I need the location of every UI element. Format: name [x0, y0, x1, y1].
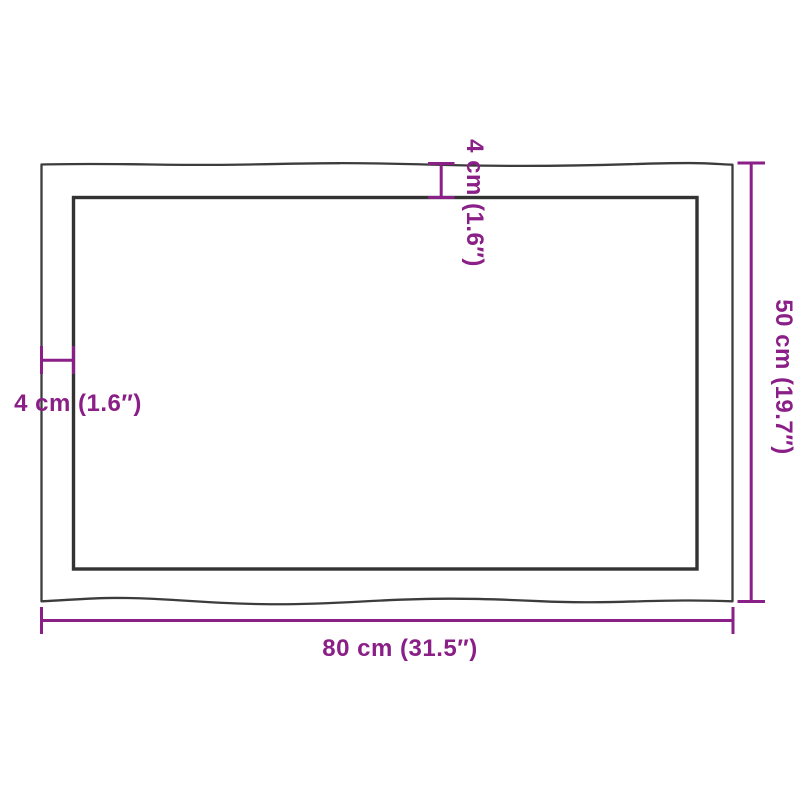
height-dimension-label: 50 cm (19.7″) [771, 299, 795, 454]
height-dimension-line [738, 163, 766, 602]
left-thickness-dimension-line [42, 346, 74, 374]
left-thickness-label: 4 cm (1.6″) [14, 392, 142, 416]
width-dimension-line [42, 607, 734, 634]
top-thickness-label: 4 cm (1.6″) [462, 139, 486, 267]
width-dimension-label: 80 cm (31.5″) [322, 637, 477, 661]
tabletop-dimension-diagram: 80 cm (31.5″) 50 cm (19.7″) 4 cm (1.6″) … [0, 0, 800, 800]
outer-edge-outline [42, 163, 733, 604]
inner-edge-outline [74, 198, 698, 570]
top-thickness-dimension-line [428, 164, 455, 198]
